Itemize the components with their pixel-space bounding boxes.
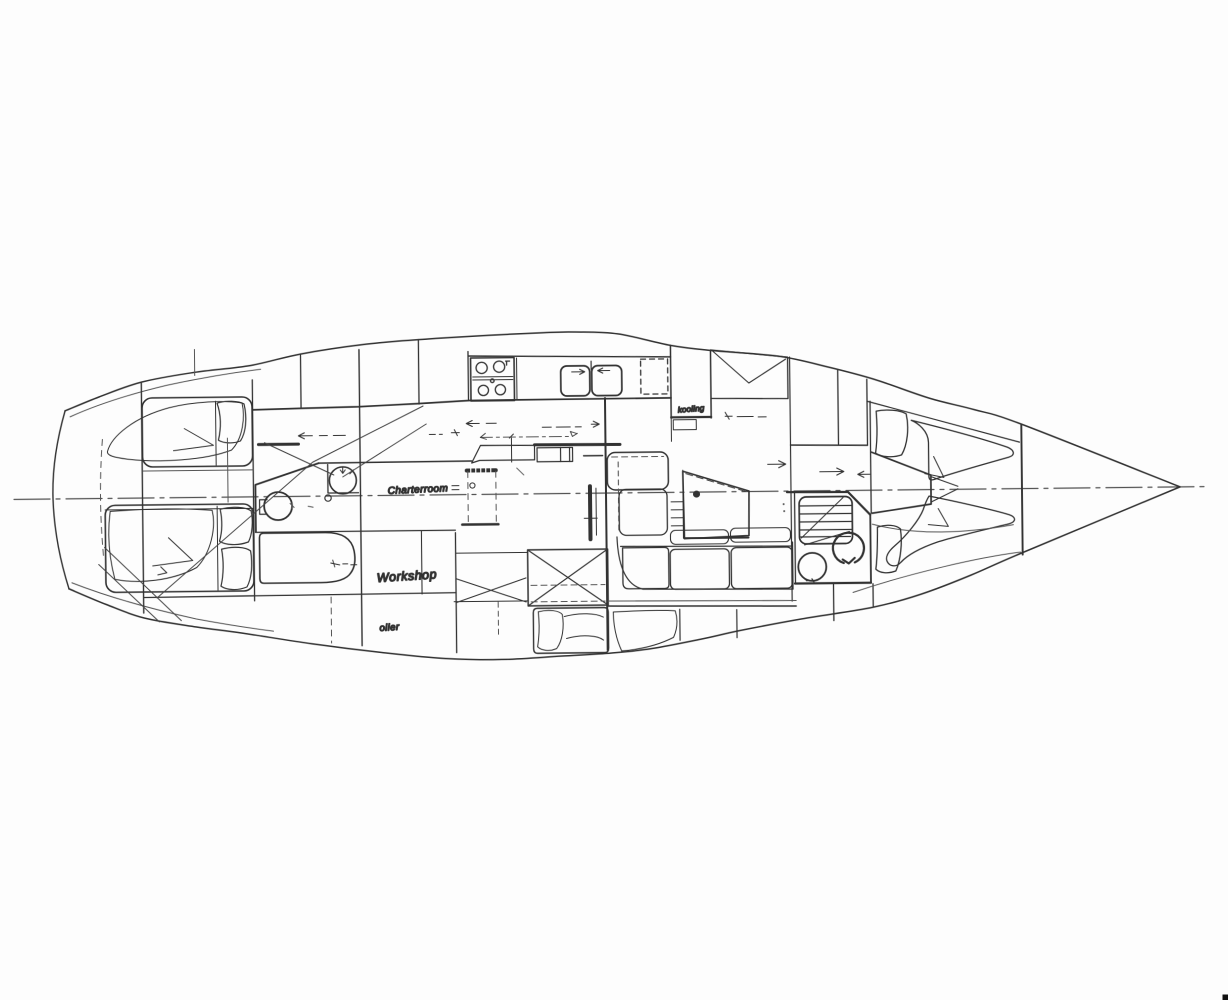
svg-text:Workshop: Workshop (376, 567, 437, 585)
svg-text:oiler: oiler (379, 622, 400, 634)
svg-text:kooling: kooling (677, 404, 705, 415)
